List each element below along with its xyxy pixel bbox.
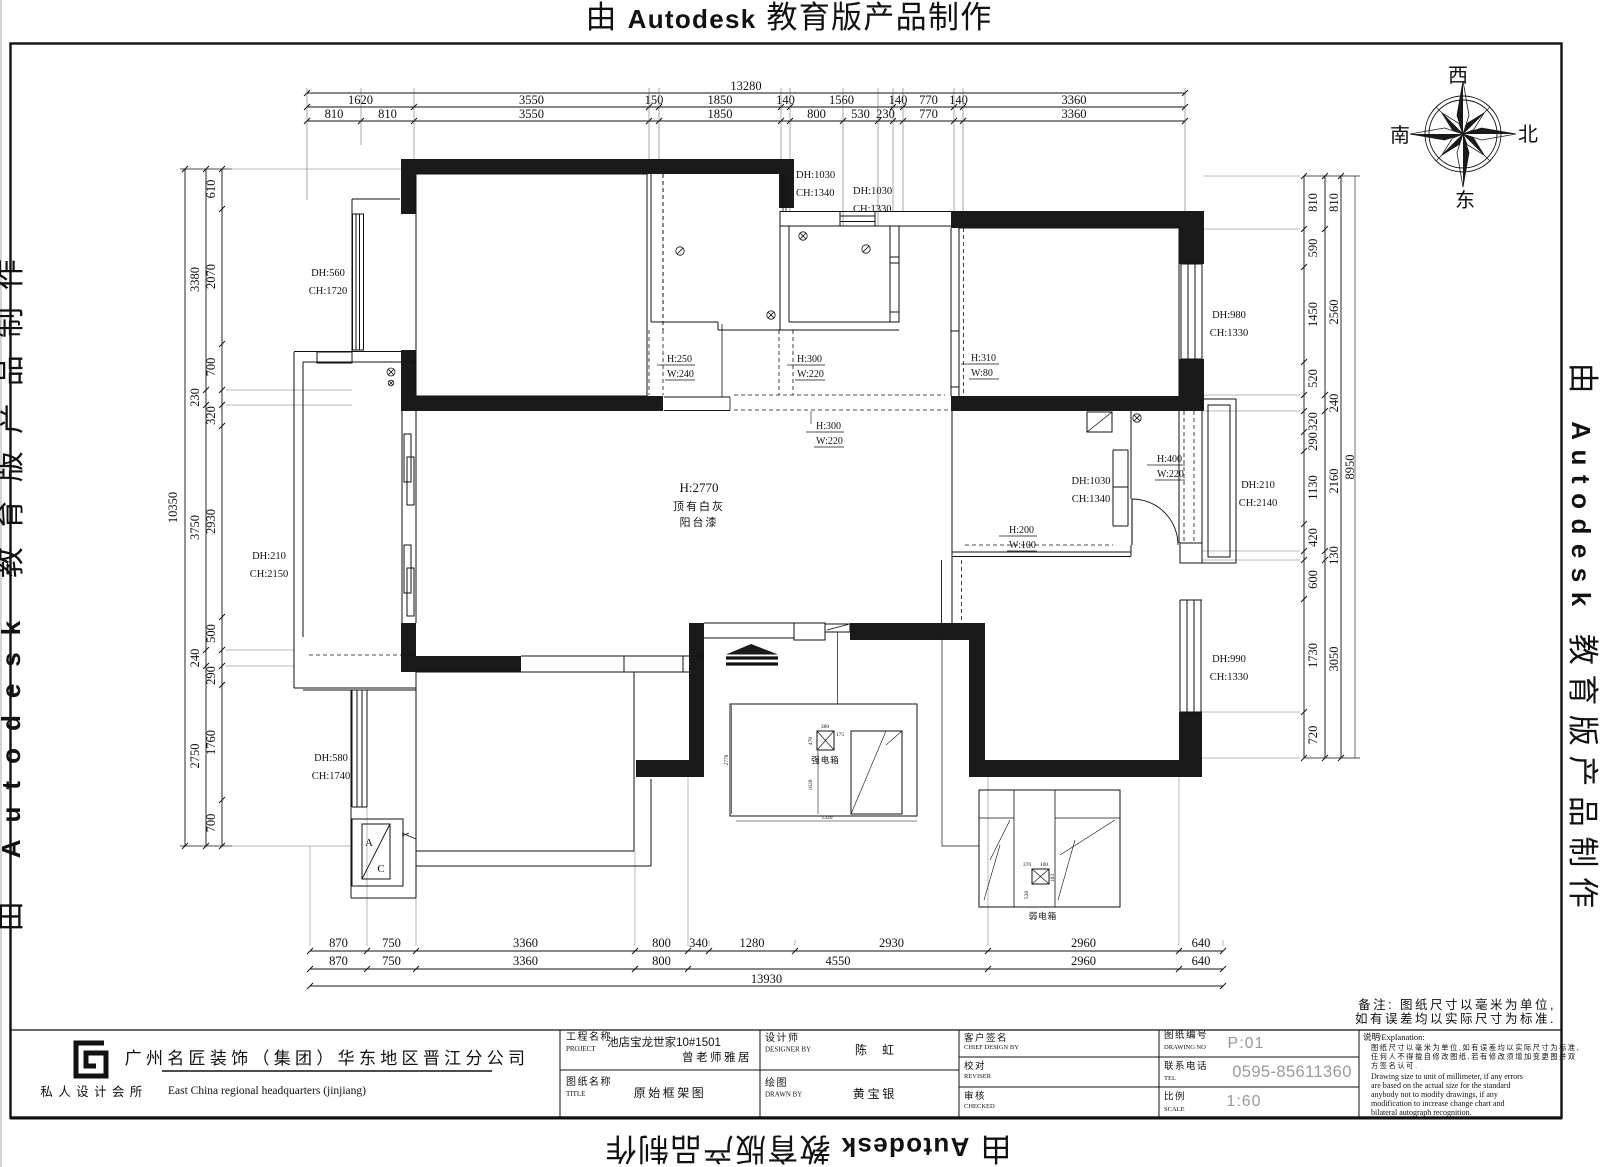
svg-text:2750: 2750 xyxy=(188,744,202,769)
svg-text:100: 100 xyxy=(1040,862,1049,868)
svg-text:810: 810 xyxy=(378,107,397,121)
svg-text:校对: 校对 xyxy=(964,1060,986,1072)
svg-text:870: 870 xyxy=(329,936,348,950)
svg-text:CHIEF DESIGN BY: CHIEF DESIGN BY xyxy=(964,1044,1019,1051)
svg-text:1320: 1320 xyxy=(822,815,833,821)
svg-text:PROJECT: PROJECT xyxy=(566,1045,596,1053)
svg-text:CH:1330: CH:1330 xyxy=(1210,328,1249,339)
svg-text:图纸尺寸以毫米为单位,如有误差均以实际尺寸为标准,: 图纸尺寸以毫米为单位,如有误差均以实际尺寸为标准, xyxy=(1371,1043,1580,1052)
svg-text:北: 北 xyxy=(1518,123,1538,146)
svg-text:870: 870 xyxy=(329,954,348,968)
svg-text:顶有白灰: 顶有白灰 xyxy=(673,499,725,513)
svg-text:DH:1030: DH:1030 xyxy=(1071,476,1110,487)
svg-text:2770: 2770 xyxy=(724,754,730,765)
svg-text:设计师: 设计师 xyxy=(765,1031,800,1044)
svg-text:Drawing size to unit of millim: Drawing size to unit of millimeter, if a… xyxy=(1371,1072,1523,1081)
svg-text:由 Autodesk 教育版产品制作: 由 Autodesk 教育版产品制作 xyxy=(0,242,27,932)
svg-text:770: 770 xyxy=(919,107,938,121)
svg-text:420: 420 xyxy=(1306,528,1320,547)
svg-text:W:100: W:100 xyxy=(1009,540,1036,551)
svg-text:140: 140 xyxy=(776,93,795,107)
svg-text:南: 南 xyxy=(1390,124,1410,147)
svg-text:530: 530 xyxy=(851,107,870,121)
svg-text:联系电话: 联系电话 xyxy=(1164,1060,1208,1072)
svg-text:150: 150 xyxy=(645,93,664,107)
svg-text:320: 320 xyxy=(204,406,218,425)
svg-text:东: 东 xyxy=(1455,189,1475,212)
svg-text:DRAWN BY: DRAWN BY xyxy=(765,1091,802,1099)
svg-text:520: 520 xyxy=(1024,891,1030,900)
svg-text:2070: 2070 xyxy=(204,264,218,289)
svg-text:CH:1340: CH:1340 xyxy=(796,188,835,199)
svg-text:任何人不得擅自修改图纸,若有修改须增加变更图并双: 任何人不得擅自修改图纸,若有修改须增加变更图并双 xyxy=(1371,1052,1577,1061)
svg-text:10350: 10350 xyxy=(166,492,180,523)
svg-text:客户签名: 客户签名 xyxy=(964,1032,1008,1044)
svg-text:W:220: W:220 xyxy=(1157,469,1184,480)
svg-text:原始框架图: 原始框架图 xyxy=(634,1086,707,1100)
svg-text:anybody not to modify drawings: anybody not to modify drawings, if any xyxy=(1371,1090,1498,1099)
svg-text:方签名认可.: 方签名认可. xyxy=(1371,1061,1419,1070)
svg-text:1620: 1620 xyxy=(808,779,814,790)
svg-text:290: 290 xyxy=(1306,432,1320,451)
svg-text:800: 800 xyxy=(652,954,671,968)
svg-text:SCALE: SCALE xyxy=(1164,1106,1185,1113)
svg-text:130: 130 xyxy=(1327,546,1341,565)
svg-text:810: 810 xyxy=(1306,193,1320,212)
svg-text:140: 140 xyxy=(889,93,908,107)
svg-text:CH:1720: CH:1720 xyxy=(309,286,348,297)
svg-text:1280: 1280 xyxy=(740,936,765,950)
svg-text:140: 140 xyxy=(949,93,968,107)
svg-text:700: 700 xyxy=(204,814,218,833)
svg-text:640: 640 xyxy=(1192,936,1211,950)
svg-text:640: 640 xyxy=(1192,954,1211,968)
svg-text:230: 230 xyxy=(876,107,895,121)
svg-text:广州名匠装饰（集团）华东地区晋江分公司: 广州名匠装饰（集团）华东地区晋江分公司 xyxy=(125,1049,530,1068)
svg-text:13930: 13930 xyxy=(751,972,782,986)
svg-text:C: C xyxy=(377,863,384,875)
svg-text:750: 750 xyxy=(382,954,401,968)
svg-text:1850: 1850 xyxy=(708,93,733,107)
svg-text:3050: 3050 xyxy=(1327,647,1341,672)
svg-text:2560: 2560 xyxy=(1327,300,1341,325)
svg-text:370: 370 xyxy=(1023,862,1032,868)
svg-text:2930: 2930 xyxy=(879,936,904,950)
svg-text:强电箱: 强电箱 xyxy=(811,755,840,765)
svg-text:H:2770: H:2770 xyxy=(680,480,719,495)
svg-text:1:60: 1:60 xyxy=(1226,1093,1261,1110)
svg-text:DH:210: DH:210 xyxy=(252,551,286,562)
svg-text:H:200: H:200 xyxy=(1009,525,1034,536)
svg-text:13280: 13280 xyxy=(730,79,761,93)
svg-text:800: 800 xyxy=(652,936,671,950)
svg-text:1730: 1730 xyxy=(1306,643,1320,668)
svg-text:H:300: H:300 xyxy=(816,421,841,432)
svg-text:如有误差均以实际尺寸为标准.: 如有误差均以实际尺寸为标准. xyxy=(1355,1011,1556,1026)
svg-text:H:400: H:400 xyxy=(1157,454,1182,465)
svg-text:1450: 1450 xyxy=(1306,302,1320,327)
svg-text:TITLE: TITLE xyxy=(566,1090,585,1098)
svg-text:340: 340 xyxy=(689,936,708,950)
svg-text:720: 720 xyxy=(1306,726,1320,745)
svg-text:610: 610 xyxy=(204,180,218,199)
svg-text:备注: 图纸尺寸以毫米为单位,: 备注: 图纸尺寸以毫米为单位, xyxy=(1358,997,1556,1012)
svg-text:陈: 陈 xyxy=(855,1042,867,1057)
svg-text:320: 320 xyxy=(1306,412,1320,431)
svg-text:are based on the actual size f: are based on the actual size for the sta… xyxy=(1371,1081,1511,1090)
svg-text:470: 470 xyxy=(808,737,814,746)
svg-text:2960: 2960 xyxy=(1071,936,1096,950)
svg-text:103: 103 xyxy=(1050,874,1056,883)
svg-text:阳台漆: 阳台漆 xyxy=(680,515,719,529)
svg-text:DH:980: DH:980 xyxy=(1212,310,1246,321)
svg-text:DH:210: DH:210 xyxy=(1241,480,1275,491)
svg-text:CHECKED: CHECKED xyxy=(964,1103,995,1110)
svg-text:3380: 3380 xyxy=(188,267,202,292)
svg-text:绘图: 绘图 xyxy=(765,1076,788,1089)
svg-text:由 Autodesk 教育版产品制作: 由 Autodesk 教育版产品制作 xyxy=(585,0,992,35)
svg-text:黄宝银: 黄宝银 xyxy=(853,1087,897,1101)
svg-text:DH:990: DH:990 xyxy=(1212,654,1246,665)
svg-text:DH:1030: DH:1030 xyxy=(853,186,892,197)
svg-text:290: 290 xyxy=(204,666,218,685)
svg-text:W:220: W:220 xyxy=(797,369,824,380)
svg-text:CH:1340: CH:1340 xyxy=(1072,494,1111,505)
svg-text:H:250: H:250 xyxy=(667,354,692,365)
svg-text:P:01: P:01 xyxy=(1228,1035,1265,1052)
svg-text:TEL: TEL xyxy=(1164,1075,1176,1082)
svg-text:工程名称: 工程名称 xyxy=(566,1030,612,1043)
svg-text:由 Autodesk 教育版产品制作: 由 Autodesk 教育版产品制作 xyxy=(1565,363,1600,918)
svg-text:2160: 2160 xyxy=(1327,469,1341,494)
svg-text:520: 520 xyxy=(1306,369,1320,388)
svg-text:H:300: H:300 xyxy=(797,354,822,365)
svg-text:CH:1330: CH:1330 xyxy=(1210,672,1249,683)
svg-text:审核: 审核 xyxy=(964,1090,986,1102)
svg-text:图纸名称: 图纸名称 xyxy=(566,1075,612,1088)
svg-text:虹: 虹 xyxy=(882,1043,894,1057)
svg-text:说明: 说明 xyxy=(1363,1032,1380,1042)
svg-text:比例: 比例 xyxy=(1164,1091,1186,1103)
svg-text:230: 230 xyxy=(188,388,202,407)
svg-text:W:80: W:80 xyxy=(971,368,993,379)
svg-text:240: 240 xyxy=(188,649,202,668)
svg-text:/Explanation:: /Explanation: xyxy=(1379,1032,1425,1042)
svg-text:W:240: W:240 xyxy=(667,369,694,380)
svg-text:池店宝龙世家10#1501: 池店宝龙世家10#1501 xyxy=(607,1035,721,1049)
svg-text:3360: 3360 xyxy=(513,936,538,950)
svg-text:3550: 3550 xyxy=(519,93,544,107)
svg-text:3750: 3750 xyxy=(188,515,202,540)
svg-text:图纸编号: 图纸编号 xyxy=(1164,1029,1208,1041)
svg-text:3360: 3360 xyxy=(1062,93,1087,107)
svg-text:East China regional headquarte: East China regional headquarters (jinjia… xyxy=(168,1085,366,1097)
svg-text:3360: 3360 xyxy=(1062,107,1087,121)
svg-text:1850: 1850 xyxy=(708,107,733,121)
svg-text:3360: 3360 xyxy=(513,954,538,968)
svg-text:A: A xyxy=(365,837,373,849)
svg-text:700: 700 xyxy=(204,358,218,377)
svg-text:1560: 1560 xyxy=(829,93,854,107)
svg-text:REVISER: REVISER xyxy=(964,1073,992,1080)
svg-text:590: 590 xyxy=(1306,239,1320,258)
svg-text:CH:2150: CH:2150 xyxy=(250,569,289,580)
svg-text:DH:560: DH:560 xyxy=(311,268,345,279)
svg-text:弱电箱: 弱电箱 xyxy=(1029,911,1058,921)
svg-text:DH:1030: DH:1030 xyxy=(796,170,835,181)
svg-text:CH:1330: CH:1330 xyxy=(853,204,892,215)
svg-text:810: 810 xyxy=(325,107,344,121)
svg-text:500: 500 xyxy=(204,624,218,643)
svg-text:由 Autodesk 教育版产品制作: 由 Autodesk 教育版产品制作 xyxy=(604,1131,1011,1166)
svg-text:西: 西 xyxy=(1448,65,1468,87)
svg-text:CH:1740: CH:1740 xyxy=(312,771,351,782)
svg-text:曾老师雅居: 曾老师雅居 xyxy=(682,1050,752,1064)
svg-text:1130: 1130 xyxy=(1306,475,1320,500)
svg-text:4550: 4550 xyxy=(826,954,851,968)
svg-text:750: 750 xyxy=(382,936,401,950)
svg-text:600: 600 xyxy=(1306,570,1320,589)
svg-text:H:310: H:310 xyxy=(971,353,996,364)
svg-text:bilateral autograph recognitio: bilateral autograph recognition. xyxy=(1371,1108,1472,1117)
svg-text:240: 240 xyxy=(1327,394,1341,413)
svg-text:1620: 1620 xyxy=(348,93,373,107)
svg-text:2960: 2960 xyxy=(1071,954,1096,968)
svg-text:0595-85611360: 0595-85611360 xyxy=(1232,1063,1352,1081)
svg-text:810: 810 xyxy=(1327,193,1341,212)
svg-text:W:220: W:220 xyxy=(816,436,843,447)
svg-text:DESIGNER BY: DESIGNER BY xyxy=(765,1046,811,1054)
svg-text:770: 770 xyxy=(919,93,938,107)
svg-text:DRAWING NO: DRAWING NO xyxy=(1164,1044,1206,1051)
svg-text:3550: 3550 xyxy=(519,107,544,121)
svg-text:1760: 1760 xyxy=(204,730,218,755)
svg-text:modification to increase chang: modification to increase change chart an… xyxy=(1371,1099,1505,1108)
svg-text:DH:580: DH:580 xyxy=(314,753,348,764)
svg-text:800: 800 xyxy=(807,107,826,121)
svg-text:私人设计会所: 私人设计会所 xyxy=(40,1084,147,1099)
svg-text:175: 175 xyxy=(836,732,845,738)
svg-text:2930: 2930 xyxy=(204,509,218,534)
svg-text:CH:2140: CH:2140 xyxy=(1239,498,1278,509)
svg-text:380: 380 xyxy=(821,724,830,730)
